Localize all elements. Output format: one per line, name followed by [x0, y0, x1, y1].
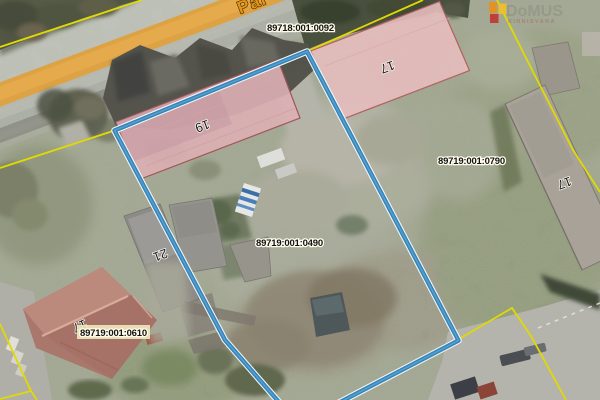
svg-text:89719:001:0790: 89719:001:0790 — [438, 156, 505, 167]
svg-text:89719:001:0490: 89719:001:0490 — [256, 238, 323, 249]
svg-text:KINNISVARA: KINNISVARA — [508, 19, 556, 25]
svg-text:89719:001:0610: 89719:001:0610 — [80, 328, 147, 339]
svg-text:DoMUS: DoMUS — [506, 3, 563, 20]
svg-text:89718:001:0092: 89718:001:0092 — [267, 23, 334, 34]
